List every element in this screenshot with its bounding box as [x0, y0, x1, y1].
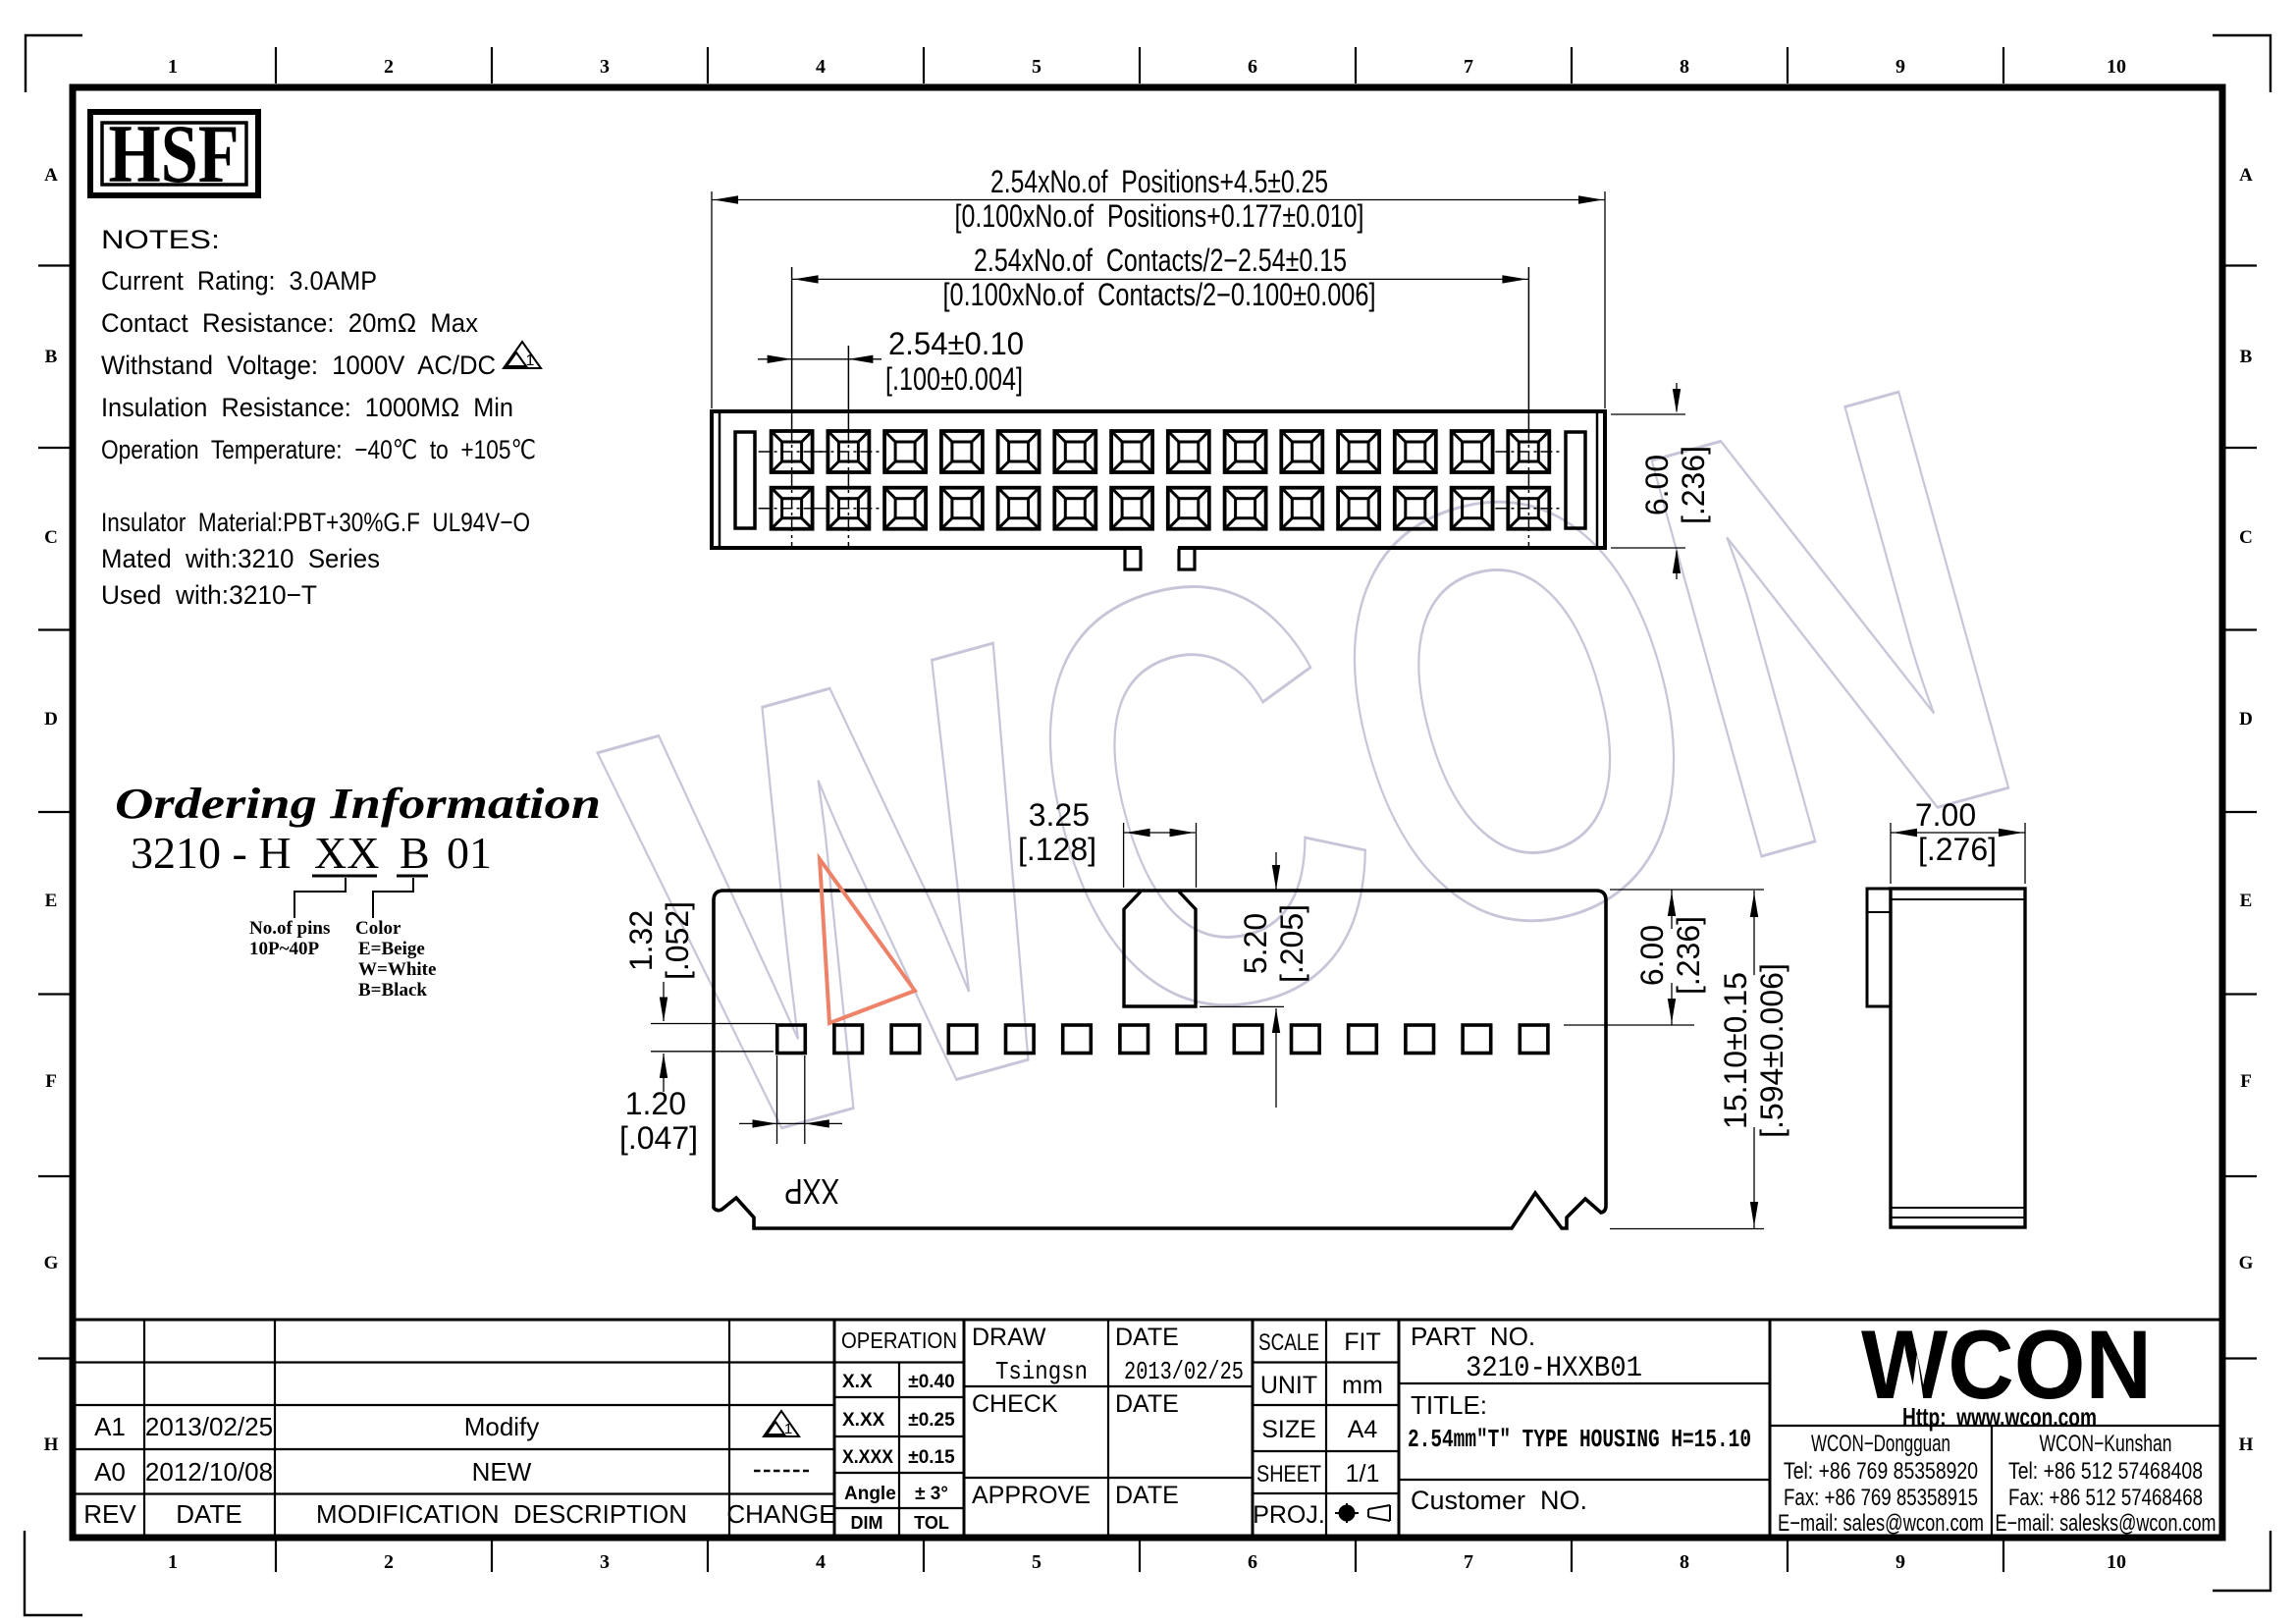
svg-text:[.128]: [.128]	[1018, 832, 1096, 867]
svg-text:[0.100xNo.of Contacts/2−0.100: [0.100xNo.of Contacts/2−0.100±0.006]	[943, 277, 1376, 312]
svg-text:10: 10	[2107, 56, 2126, 78]
svg-text:2: 2	[384, 1551, 394, 1573]
svg-text:NEW: NEW	[472, 1457, 532, 1487]
svg-text:1.32: 1.32	[623, 910, 659, 971]
svg-text:± 3°: ± 3°	[915, 1484, 948, 1504]
svg-text:XX: XX	[314, 828, 379, 878]
svg-text:D: D	[44, 709, 58, 730]
svg-text:NOTES:: NOTES:	[101, 225, 220, 254]
svg-text:E=Beige: E=Beige	[358, 939, 425, 959]
svg-text:X.XXX: X.XXX	[842, 1447, 893, 1468]
svg-text:4: 4	[816, 1551, 826, 1573]
svg-text:DATE: DATE	[176, 1499, 241, 1529]
svg-text:DATE: DATE	[1115, 1324, 1179, 1351]
svg-text:Tel: +86 769 85358920: Tel: +86 769 85358920	[1784, 1458, 1978, 1485]
svg-text:OPERATION: OPERATION	[841, 1327, 957, 1353]
svg-text:F: F	[2240, 1071, 2252, 1092]
svg-text:2: 2	[384, 56, 394, 78]
svg-text:B: B	[400, 828, 430, 878]
svg-text:6.00: 6.00	[1639, 455, 1675, 515]
svg-text:PROJ.: PROJ.	[1253, 1501, 1325, 1529]
svg-text:B=Black: B=Black	[358, 980, 427, 1001]
svg-text:9: 9	[1896, 1551, 1905, 1573]
svg-text:C: C	[2239, 527, 2253, 548]
svg-text:HSF: HSF	[109, 108, 240, 200]
svg-text:4: 4	[816, 56, 826, 78]
svg-text:Insulation Resistance: 1000M: Insulation Resistance: 1000MΩ Min	[101, 393, 513, 422]
svg-text:DATE: DATE	[1115, 1390, 1179, 1418]
svg-text:D: D	[2239, 709, 2253, 730]
svg-text:[.236]: [.236]	[1671, 916, 1706, 995]
svg-text:Customer NO.: Customer NO.	[1411, 1486, 1587, 1515]
svg-text:Current Rating: 3.0AMP: Current Rating: 3.0AMP	[101, 266, 377, 296]
svg-text:±0.40: ±0.40	[908, 1372, 954, 1392]
svg-text:2.54xNo.of Positions+4.5±0.25: 2.54xNo.of Positions+4.5±0.25	[990, 164, 1328, 199]
svg-text:F: F	[45, 1071, 57, 1092]
svg-text:6: 6	[1248, 1551, 1257, 1573]
svg-text:PART NO.: PART NO.	[1411, 1322, 1535, 1351]
svg-text:Operation Temperature: −40℃: Operation Temperature: −40℃ to +105℃	[101, 435, 536, 464]
svg-text:7: 7	[1464, 56, 1473, 78]
svg-text:Contact Resistance: 20mΩ Ma: Contact Resistance: 20mΩ Max	[101, 308, 478, 338]
svg-text:5.20: 5.20	[1238, 913, 1273, 974]
svg-text:2013/02/25: 2013/02/25	[1124, 1357, 1244, 1386]
svg-text:X.X: X.X	[842, 1372, 873, 1392]
svg-text:Fax: +86 512 57468468: Fax: +86 512 57468468	[2008, 1485, 2203, 1511]
svg-text:A: A	[44, 165, 58, 186]
svg-text:MODIFICATION DESCRIPTION: MODIFICATION DESCRIPTION	[316, 1499, 687, 1529]
svg-text:REV: REV	[83, 1499, 136, 1529]
svg-text:SIZE: SIZE	[1261, 1416, 1316, 1443]
svg-text:TOL: TOL	[914, 1513, 949, 1533]
svg-text:8: 8	[1680, 56, 1689, 78]
svg-text:7: 7	[1464, 1551, 1473, 1573]
svg-text:2.54mm"T" TYPE HOUSING H=15.10: 2.54mm"T" TYPE HOUSING H=15.10	[1408, 1425, 1751, 1454]
svg-text:10P~40P: 10P~40P	[249, 939, 319, 959]
svg-text:A0: A0	[94, 1457, 126, 1487]
svg-text:1: 1	[168, 56, 178, 78]
svg-text:1.20: 1.20	[625, 1086, 686, 1121]
svg-text:2.54xNo.of Contacts/2−2.54±0.: 2.54xNo.of Contacts/2−2.54±0.15	[974, 243, 1347, 278]
svg-text:2013/02/25: 2013/02/25	[145, 1412, 273, 1441]
svg-text:DRAW: DRAW	[972, 1324, 1046, 1351]
svg-text:Ordering Information: Ordering Information	[115, 780, 601, 828]
svg-text:SHEET: SHEET	[1256, 1461, 1321, 1488]
svg-text:1: 1	[526, 352, 535, 369]
svg-text:E−mail: salesks@wcon.com: E−mail: salesks@wcon.com	[1996, 1510, 2216, 1537]
svg-text:mm: mm	[1342, 1372, 1383, 1399]
svg-text:B: B	[2240, 347, 2253, 367]
svg-text:3210 - H: 3210 - H	[131, 828, 292, 878]
svg-text:10: 10	[2107, 1551, 2126, 1573]
svg-text:2012/10/08: 2012/10/08	[145, 1457, 273, 1487]
svg-text:XXP: XXP	[784, 1171, 839, 1212]
svg-text:UNIT: UNIT	[1260, 1372, 1317, 1399]
svg-text:DATE: DATE	[1115, 1482, 1179, 1509]
svg-text:E: E	[2240, 891, 2253, 911]
svg-text:1/1: 1/1	[1346, 1460, 1380, 1488]
svg-text:DIM: DIM	[851, 1513, 883, 1533]
svg-text:CHANGE: CHANGE	[726, 1499, 835, 1529]
svg-text:E−mail: sales@wcon.com: E−mail: sales@wcon.com	[1778, 1510, 1984, 1537]
svg-text:[.594±0.006]: [.594±0.006]	[1754, 963, 1789, 1138]
svg-text:WCON−Kunshan: WCON−Kunshan	[2040, 1431, 2172, 1457]
svg-text:A4: A4	[1348, 1416, 1378, 1443]
svg-text:9: 9	[1896, 56, 1905, 78]
svg-text:6: 6	[1248, 56, 1257, 78]
svg-text:15.10±0.15: 15.10±0.15	[1718, 972, 1753, 1129]
svg-text:G: G	[44, 1253, 59, 1273]
svg-text:2.54±0.10: 2.54±0.10	[888, 326, 1024, 361]
svg-text:W=White: W=White	[358, 959, 436, 980]
svg-text:SCALE: SCALE	[1258, 1329, 1319, 1356]
svg-text:E: E	[45, 891, 58, 911]
svg-text:5: 5	[1032, 56, 1041, 78]
svg-text:3.25: 3.25	[1029, 797, 1090, 833]
svg-text:A1: A1	[94, 1412, 126, 1441]
svg-text:[.276]: [.276]	[1918, 832, 1997, 867]
svg-text:1: 1	[784, 1421, 792, 1437]
svg-text:Tel: +86 512 57468408: Tel: +86 512 57468408	[2008, 1458, 2203, 1485]
svg-text:3: 3	[600, 1551, 610, 1573]
svg-text:1: 1	[168, 1551, 178, 1573]
svg-text:3: 3	[600, 56, 610, 78]
svg-text:[.047]: [.047]	[619, 1120, 698, 1156]
svg-text:Withstand Voltage: 1000V AC: Withstand Voltage: 1000V AC/DC	[101, 351, 496, 380]
svg-text:Mated with:3210 Series: Mated with:3210 Series	[101, 544, 380, 573]
svg-text:CHECK: CHECK	[972, 1390, 1058, 1418]
svg-text:Http: www.wcon.com: Http: www.wcon.com	[1902, 1402, 2097, 1432]
svg-text:Fax: +86 769 85358915: Fax: +86 769 85358915	[1784, 1485, 1978, 1511]
svg-text:Insulator Material:PBT+30%G.F: Insulator Material:PBT+30%G.F UL94V−O	[101, 508, 530, 537]
svg-text:6.00: 6.00	[1634, 925, 1670, 986]
svg-text:Used with:3210−T: Used with:3210−T	[101, 580, 317, 610]
svg-text:3210-HXXB01: 3210-HXXB01	[1466, 1352, 1642, 1385]
svg-text:G: G	[2239, 1253, 2254, 1273]
svg-text:[.052]: [.052]	[660, 901, 695, 980]
svg-text:Tsingsn: Tsingsn	[995, 1357, 1088, 1386]
svg-text:X.XX: X.XX	[842, 1410, 885, 1431]
svg-text:No.of pins: No.of pins	[249, 918, 330, 939]
svg-text:[.205]: [.205]	[1274, 904, 1309, 983]
svg-text:TITLE:: TITLE:	[1411, 1390, 1487, 1420]
svg-text:7.00: 7.00	[1915, 797, 1976, 833]
svg-text:8: 8	[1680, 1551, 1689, 1573]
svg-text:Color: Color	[355, 918, 401, 939]
svg-text:H: H	[2239, 1435, 2254, 1455]
svg-text:B: B	[45, 347, 58, 367]
svg-text:[.236]: [.236]	[1676, 446, 1711, 524]
svg-text:WCON−Dongguan: WCON−Dongguan	[1811, 1431, 1950, 1457]
svg-text:FIT: FIT	[1344, 1328, 1381, 1356]
svg-text:5: 5	[1032, 1551, 1041, 1573]
svg-text:±0.25: ±0.25	[908, 1410, 955, 1431]
svg-text:[.100±0.004]: [.100±0.004]	[885, 361, 1023, 397]
svg-text:A: A	[2239, 165, 2253, 186]
svg-text:Angle: Angle	[844, 1484, 896, 1504]
svg-text:C: C	[44, 527, 58, 548]
svg-text:Modify: Modify	[464, 1412, 540, 1441]
svg-text:±0.15: ±0.15	[908, 1447, 955, 1468]
svg-text:[0.100xNo.of Positions+0.177±: [0.100xNo.of Positions+0.177±0.010]	[955, 198, 1364, 234]
svg-text:01: 01	[447, 828, 492, 878]
svg-text:APPROVE: APPROVE	[972, 1482, 1091, 1509]
svg-text:H: H	[44, 1435, 59, 1455]
